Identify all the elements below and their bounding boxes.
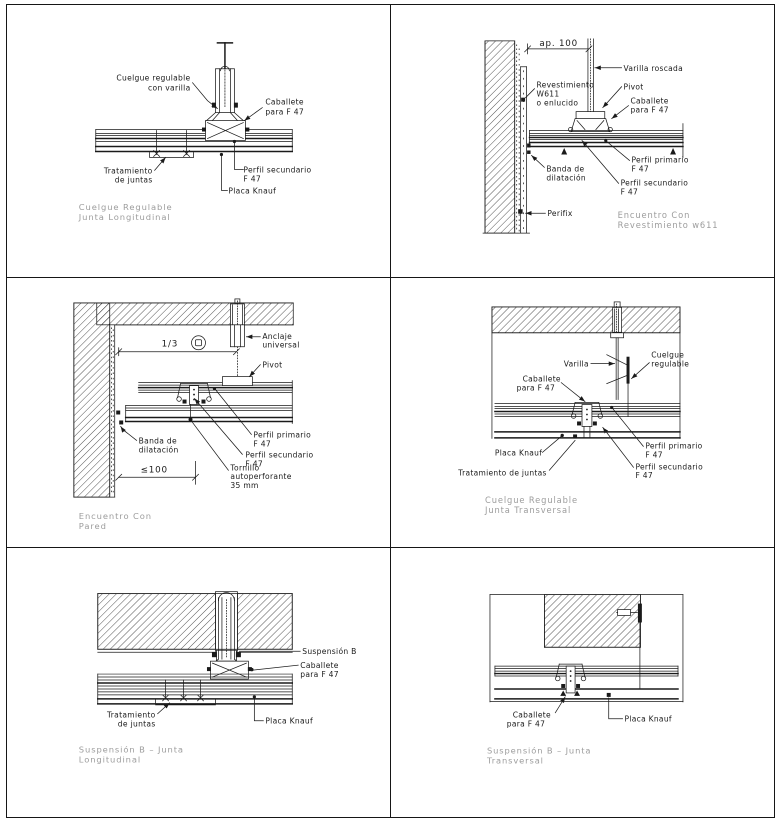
- caption-line-2: Transversal: [486, 755, 544, 765]
- detail-encuentro-con-revestimiento-w611: ap. 100 Varilla roscada Pivot Caballete …: [391, 5, 774, 277]
- label-perfil-secundario-2: F 47: [621, 187, 638, 196]
- placa-knauf-board: [495, 432, 680, 438]
- label-banda-dilatacion: Banda de: [139, 436, 177, 445]
- threaded-rod: [588, 39, 593, 118]
- panel-suspension-b-junta-longitudinal: Suspensión B Caballete para F 47 Tratami…: [7, 548, 391, 817]
- detail-suspension-b-junta-longitudinal: Suspensión B Caballete para F 47 Tratami…: [7, 548, 390, 817]
- panel-suspension-b-junta-transversal: Caballete para F 47 Placa Knauf Suspensi…: [391, 548, 774, 817]
- label-tratamiento-juntas: Tratamiento: [103, 166, 153, 175]
- label-perifix: Perifix: [547, 209, 573, 218]
- label-perfil-secundario: Perfil secundario: [621, 178, 689, 187]
- label-revestimiento-2: W611: [536, 90, 559, 99]
- caballete-and-secondary: [177, 384, 212, 405]
- beam-section: [544, 595, 640, 648]
- ceiling-profiles: [98, 674, 292, 704]
- label-perfil-secundario-2: F 47: [243, 174, 261, 183]
- caption-line-1: Suspensión B – Junta: [79, 744, 184, 754]
- label-banda-dilatacion-2: dilatación: [546, 173, 586, 182]
- perifix-fixing: [518, 209, 522, 213]
- label-placa-knauf: Placa Knauf: [265, 717, 313, 726]
- label-caballete-2: para F 47: [265, 108, 304, 117]
- label-caballete: Caballete: [513, 711, 551, 720]
- label-revestimiento-3: o enlucido: [536, 99, 578, 108]
- caption-line-1: Suspensión B – Junta: [487, 745, 591, 755]
- label-pivot: Pivot: [262, 361, 282, 370]
- label-caballete-2: para F 47: [517, 384, 555, 393]
- label-anclaje: Anclaje: [262, 332, 292, 341]
- label-tornillo-3: 35 mm: [230, 481, 258, 490]
- label-caballete: Caballete: [300, 661, 339, 670]
- label-perfil-primario-2: F 47: [645, 450, 662, 459]
- placa-fixing-dot: [607, 693, 611, 697]
- pivot-plate: [222, 377, 252, 386]
- panel-encuentro-con-revestimiento-w611: ap. 100 Varilla roscada Pivot Caballete …: [391, 5, 774, 278]
- label-perfil-primario-2: F 47: [631, 164, 648, 173]
- label-banda-dilatacion-2: dilatación: [139, 445, 179, 454]
- label-caballete: Caballete: [630, 97, 668, 106]
- label-caballete-2: para F 47: [300, 670, 339, 679]
- panel-cuelgue-regulable-junta-longitudinal: Cuelgue regulable con varilla Caballete …: [7, 5, 391, 278]
- label-cuelgue-regulable: Cuelgue regulable: [116, 74, 190, 83]
- label-cuelgue-regulable-2: regulable: [651, 360, 689, 369]
- label-caballete-2: para F 47: [630, 106, 668, 115]
- label-anclaje-2: universal: [262, 341, 299, 350]
- caption-line-1: Cuelgue Regulable: [79, 202, 173, 212]
- label-caballete: Caballete: [523, 375, 561, 384]
- dim-borde: ≤100: [141, 465, 168, 475]
- ceiling-profiles: [495, 666, 678, 699]
- label-perfil-secundario: Perfil secundario: [243, 165, 311, 174]
- label-varilla-roscada: Varilla roscada: [624, 64, 683, 73]
- joint-treatment-screws: [150, 131, 194, 158]
- knauf-detail-sheet: { "sheet": { "background": "#ffffff", "l…: [0, 0, 783, 831]
- label-placa-knauf: Placa Knauf: [495, 448, 542, 457]
- anclaje-universal-anchor: [230, 299, 244, 379]
- label-tornillo-2: autoperforante: [230, 472, 291, 481]
- detail-suspension-b-junta-transversal: Caballete para F 47 Placa Knauf Suspensi…: [391, 548, 774, 817]
- caption-line-2: Junta Transversal: [484, 505, 571, 515]
- label-perfil-secundario-2: F 47: [635, 471, 652, 480]
- dim-ap-100: ap. 100: [539, 39, 577, 49]
- ceiling-assembly: [96, 130, 292, 152]
- label-placa-knauf: Placa Knauf: [625, 715, 672, 724]
- label-perfil-primario-2: F 47: [253, 439, 271, 448]
- label-tratamiento-juntas: Tratamiento de juntas: [457, 468, 546, 477]
- label-perfil-secundario: Perfil secundario: [245, 450, 313, 459]
- label-perfil-primario: Perfil primario: [631, 155, 688, 164]
- placa-and-lower-profile: [116, 405, 292, 425]
- caption-line-1: Encuentro Con: [79, 511, 152, 521]
- label-placa-knauf: Placa Knauf: [228, 186, 276, 195]
- caption-line-2: Pared: [79, 521, 107, 531]
- caption-line-1: Cuelgue Regulable: [485, 495, 578, 505]
- caption-line-2: Junta Longitudinal: [78, 212, 171, 222]
- caballete-bracket: [202, 121, 249, 141]
- panel-encuentro-con-pared: 1/3 ≤100 Anclaje universal Pivot Perfil …: [7, 278, 391, 548]
- adjustable-hanger: [205, 43, 244, 122]
- panel-cuelgue-regulable-junta-transversal: Varilla Cuelgue regulable Caballete para…: [391, 278, 774, 548]
- caption-line-2: Longitudinal: [79, 754, 141, 764]
- detail-encuentro-con-pared: 1/3 ≤100 Anclaje universal Pivot Perfil …: [7, 278, 390, 547]
- leader-lines: [555, 697, 622, 719]
- pivot-and-caballete: [568, 112, 612, 132]
- label-tratamiento-juntas: Tratamiento: [106, 711, 156, 720]
- caption-line-1: Encuentro Con: [618, 210, 691, 220]
- label-perfil-primario: Perfil primario: [645, 441, 702, 450]
- drawing-sheet: Cuelgue regulable con varilla Caballete …: [6, 4, 775, 818]
- slab-section: [98, 592, 292, 653]
- label-caballete: Caballete: [265, 98, 304, 107]
- label-banda-dilatacion: Banda de: [546, 164, 584, 173]
- joint-treatment-screws: [156, 680, 216, 705]
- detail-cuelgue-regulable-junta-longitudinal: Cuelgue regulable con varilla Caballete …: [7, 5, 390, 277]
- label-perfil-secundario: Perfil secundario: [635, 462, 703, 471]
- label-tratamiento-juntas-2: de juntas: [115, 175, 153, 184]
- label-tornillo: Tornillo: [229, 463, 259, 472]
- label-suspension-b: Suspensión B: [302, 647, 356, 656]
- wall-section: [483, 41, 530, 233]
- label-varilla: Varilla: [564, 360, 589, 369]
- caballete-bracket: [207, 661, 252, 679]
- label-perfil-primario: Perfil primario: [253, 430, 311, 439]
- label-cuelgue-regulable-2: con varilla: [148, 84, 190, 93]
- label-caballete-2: para F 47: [507, 720, 545, 729]
- label-cuelgue-regulable: Cuelgue: [651, 351, 684, 360]
- label-pivot: Pivot: [624, 83, 644, 92]
- banda-dilatacion-strip: [527, 143, 530, 153]
- caption-line-2: Revestimiento w611: [618, 220, 719, 230]
- detail-cuelgue-regulable-junta-transversal: Varilla Cuelgue regulable Caballete para…: [391, 278, 774, 547]
- label-revestimiento: Revestimiento: [536, 81, 594, 90]
- dim-modulacion: 1/3: [162, 340, 179, 350]
- label-tratamiento-juntas-2: de juntas: [118, 720, 156, 729]
